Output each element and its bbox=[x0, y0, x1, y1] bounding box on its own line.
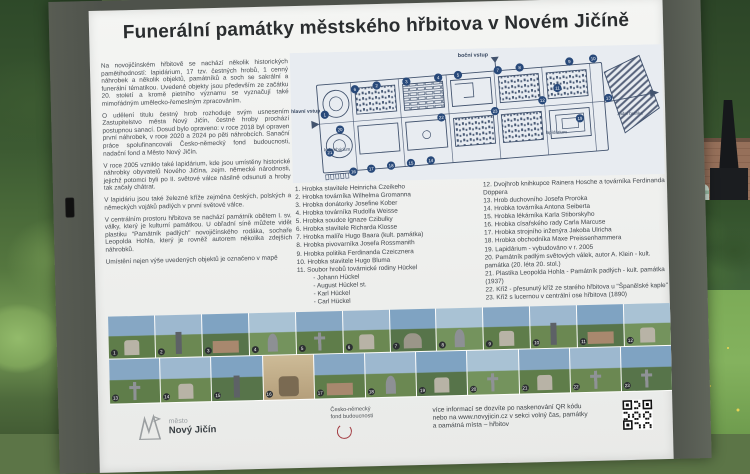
cross-bar bbox=[590, 375, 601, 378]
cemetery-photo: 9 bbox=[483, 306, 530, 349]
qr-code-icon bbox=[622, 399, 653, 430]
tombstone-photo-subject bbox=[386, 376, 396, 394]
cemetery-photo: 10 bbox=[530, 305, 577, 348]
cemetery-photo: 14 bbox=[160, 357, 211, 402]
intro-paragraph: V centrálním prostoru hřbitova se nacház… bbox=[105, 212, 293, 254]
photo-number-badge: 3 bbox=[205, 347, 212, 354]
photo-number-badge: 14 bbox=[163, 393, 170, 400]
monuments-list-col2: 12. Dvojhrob knihkupce Rainera Hosche a … bbox=[483, 177, 670, 302]
map-label-lapidarium: lapidárium bbox=[546, 129, 567, 135]
cross-bar bbox=[129, 386, 140, 389]
intro-paragraph: V roce 2005 vzniklo také lapidárium, kde… bbox=[103, 158, 291, 193]
intro-paragraph: Umístění nejen výše uvedených objektů je… bbox=[106, 254, 293, 266]
obelisk-base bbox=[710, 168, 748, 202]
cemetery-photo: 1 bbox=[108, 316, 155, 359]
tombstone-photo-subject bbox=[359, 334, 374, 349]
photo-number-badge: 22 bbox=[572, 383, 579, 390]
tombstone-photo-subject bbox=[499, 331, 514, 346]
tombstone-photo-subject bbox=[124, 340, 139, 355]
tombstone-photo-subject bbox=[455, 329, 465, 347]
monuments-list-col1: 1. Hrobka stavitele Heinricha Czeikeho2.… bbox=[295, 182, 482, 307]
cross-bar bbox=[641, 373, 652, 376]
photo-number-badge: 9 bbox=[486, 340, 493, 347]
tombstone-photo-subject bbox=[491, 373, 494, 391]
city-logo-icon bbox=[136, 413, 163, 442]
photo-number-badge: 19 bbox=[419, 387, 426, 394]
map-label-main-entrance: hlavní vstup bbox=[291, 108, 320, 115]
photo-number-badge: 23 bbox=[624, 382, 631, 389]
tombstone-photo-subject bbox=[327, 383, 353, 396]
photo-number-badge: 1 bbox=[111, 349, 118, 356]
tombstone-photo-subject bbox=[434, 377, 449, 392]
tombstone-photo-subject bbox=[178, 384, 193, 399]
photo-number-badge: 12 bbox=[627, 337, 634, 344]
cemetery-photo: 16 bbox=[263, 355, 314, 400]
intro-paragraph: V lapidáriu jsou také železné kříže zejm… bbox=[104, 192, 291, 212]
cemetery-photo: 19 bbox=[416, 351, 467, 396]
photo-number-badge: 8 bbox=[439, 341, 446, 348]
map-label-side-entrance: boční vstup bbox=[458, 52, 489, 59]
cemetery-photo: 23 bbox=[621, 346, 672, 391]
cemetery-photo: 3 bbox=[202, 313, 249, 356]
photo-number-badge: 7 bbox=[392, 343, 399, 350]
cemetery-photo: 4 bbox=[249, 312, 296, 355]
tombstone-photo-subject bbox=[640, 327, 655, 342]
board-panel: Funerální památky městského hřbitova v N… bbox=[89, 0, 674, 473]
intro-paragraph: O udělení titulu čestný hrob rozhoduje s… bbox=[102, 108, 290, 158]
tombstone-photo-subject bbox=[175, 332, 182, 354]
qr-info-text: více informací se dozvíte po naskenování… bbox=[432, 402, 616, 427]
cemetery-photo: 2 bbox=[155, 314, 202, 357]
map-label-rear-gate: zadní branka bbox=[617, 111, 643, 117]
cemetery-photo: 11 bbox=[577, 304, 624, 347]
intro-paragraphs: Na novojičínském hřbitově se nachází něk… bbox=[101, 58, 293, 271]
cemetery-photo: 18 bbox=[365, 352, 416, 397]
intro-paragraph: Na novojičínském hřbitově se nachází něk… bbox=[101, 58, 289, 108]
city-logo: město Nový Jičín bbox=[136, 412, 216, 442]
frame-brand-tag bbox=[65, 197, 74, 217]
cemetery-photo: 15 bbox=[211, 356, 262, 401]
cemetery-map: 1234567891011121314151617181920212223 bo… bbox=[290, 44, 665, 183]
cemetery-photo: 21 bbox=[518, 348, 569, 393]
tombstone-photo-subject bbox=[404, 333, 422, 348]
fund-logo-arc-icon bbox=[336, 423, 353, 440]
fund-logo: Česko-německý fond budoucnosti bbox=[330, 405, 411, 439]
cemetery-photo: 8 bbox=[436, 308, 483, 351]
photo-number-badge: 20 bbox=[470, 386, 477, 393]
cemetery-map-svg: 1234567891011121314151617181920212223 bo… bbox=[290, 44, 665, 183]
photo-number-badge: 10 bbox=[533, 339, 540, 346]
cemetery-photo: 13 bbox=[109, 358, 160, 403]
photo-number-badge: 6 bbox=[345, 344, 352, 351]
tombstone-photo-subject bbox=[537, 375, 552, 390]
cemetery-photo: 5 bbox=[296, 311, 343, 354]
tombstone-photo-subject bbox=[594, 371, 597, 389]
tombstone-photo-subject bbox=[133, 382, 136, 400]
photo-number-badge: 5 bbox=[298, 345, 305, 352]
photo-number-badge: 4 bbox=[252, 346, 259, 353]
tombstone-photo-subject bbox=[318, 332, 321, 350]
information-board: Funerální památky městského hřbitova v N… bbox=[48, 0, 711, 474]
cemetery-photo: 7 bbox=[389, 309, 436, 352]
cemetery-photo: 22 bbox=[570, 347, 621, 392]
tombstone-photo-subject bbox=[278, 376, 298, 396]
cross-bar bbox=[488, 377, 499, 380]
tombstone-photo-subject bbox=[645, 369, 648, 387]
tombstone-photo-subject bbox=[588, 331, 614, 344]
photo-number-badge: 18 bbox=[368, 388, 375, 395]
tombstone-photo-subject bbox=[212, 340, 238, 353]
photo-number-badge: 13 bbox=[112, 394, 119, 401]
cemetery-photo: 17 bbox=[314, 353, 365, 398]
city-logo-text: město Nový Jičín bbox=[169, 417, 217, 436]
photo-number-badge: 17 bbox=[317, 389, 324, 396]
city-logo-word-name: Nový Jičín bbox=[169, 424, 217, 436]
photo-number-badge: 11 bbox=[580, 338, 587, 345]
tombstone-photo-subject bbox=[234, 375, 241, 397]
tombstone-photo-subject bbox=[267, 334, 277, 352]
cemetery-photo: 12 bbox=[624, 303, 671, 346]
cross-bar bbox=[314, 336, 325, 339]
photo-number-badge: 15 bbox=[214, 392, 221, 399]
photo-number-badge: 21 bbox=[521, 384, 528, 391]
tombstone-photo-subject bbox=[551, 323, 558, 345]
page-title: Funerální památky městského hřbitova v N… bbox=[89, 9, 663, 45]
photo-number-badge: 16 bbox=[265, 391, 272, 398]
fund-logo-line2: fond budoucnosti bbox=[330, 412, 410, 421]
photo-strip: 123456789101112 1314151617181920212223 bbox=[108, 303, 672, 405]
cemetery-photo: 20 bbox=[467, 350, 518, 395]
photo-number-badge: 2 bbox=[158, 348, 165, 355]
map-label-columbarium: kolumbárium bbox=[324, 147, 351, 153]
cemetery-photo: 6 bbox=[343, 310, 390, 353]
